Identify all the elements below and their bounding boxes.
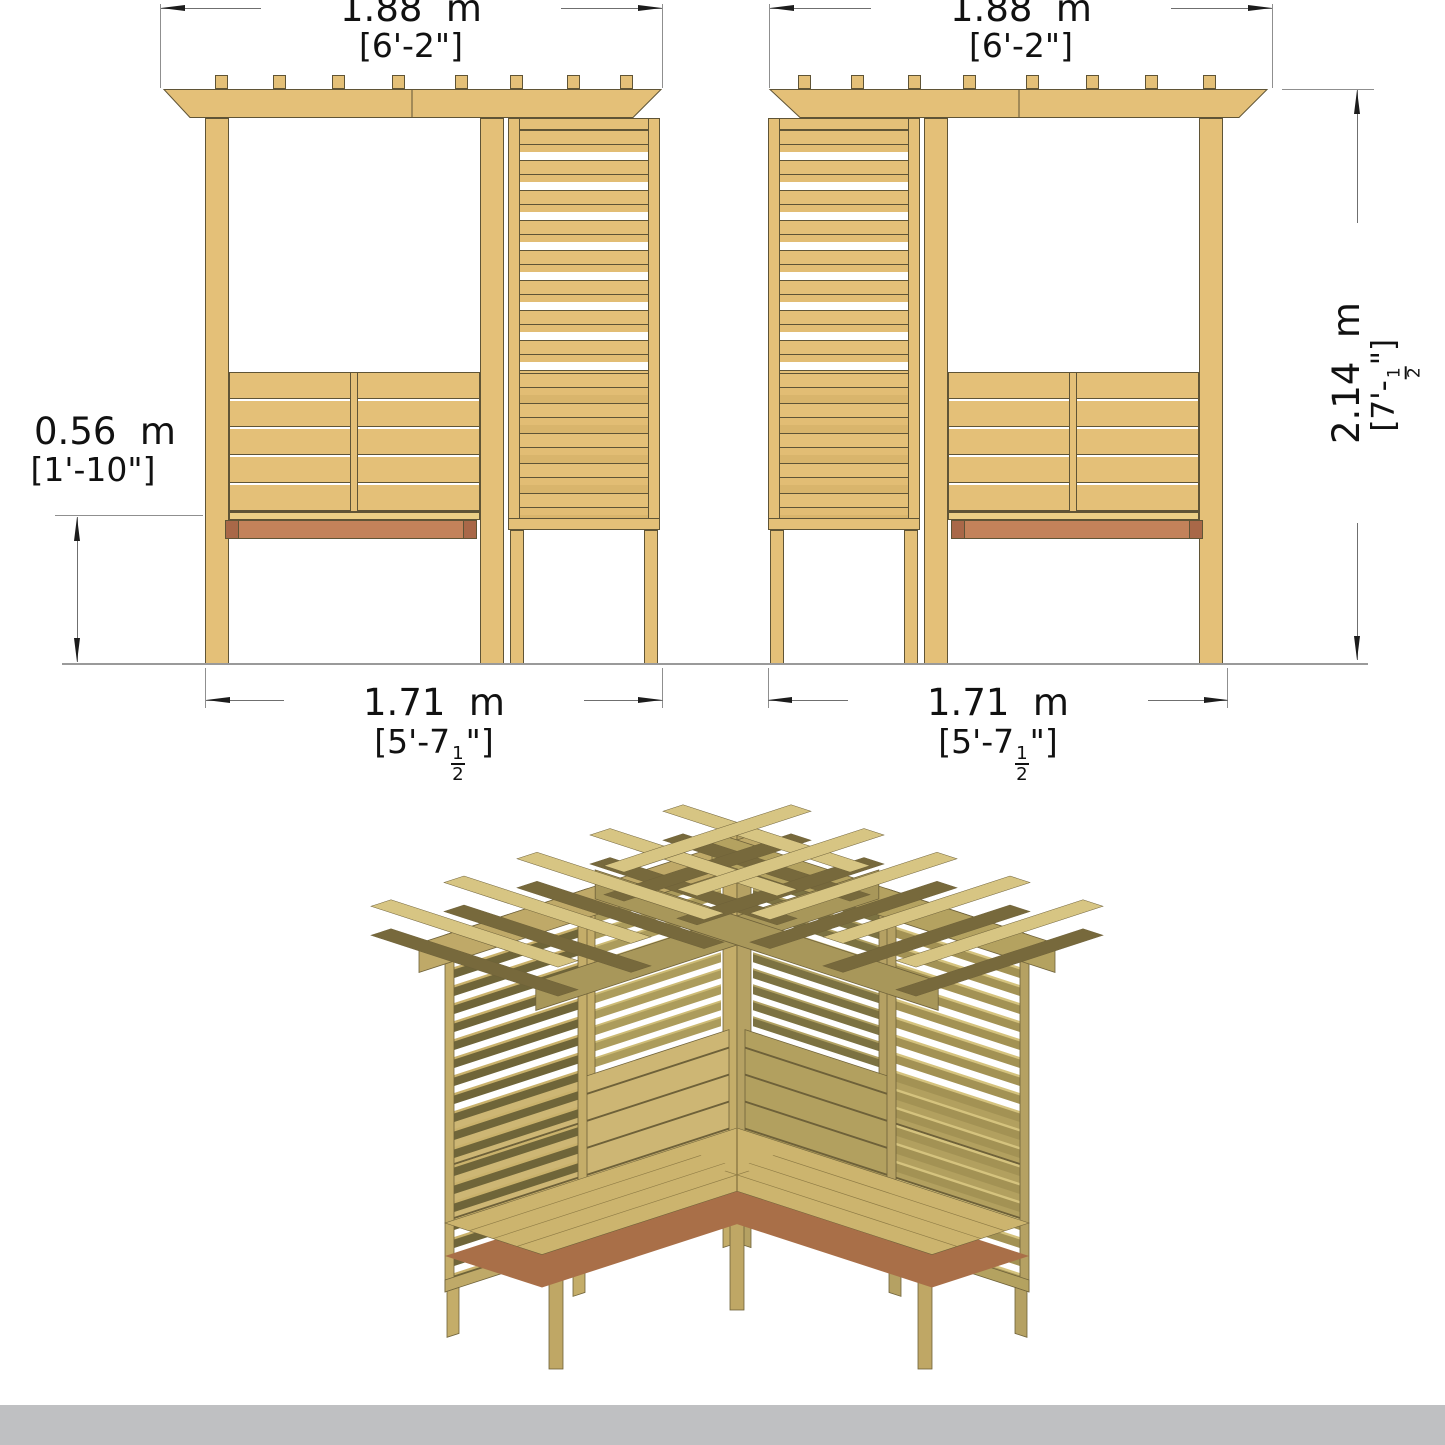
trellis-slats-lower [780,373,908,518]
trellis-bottom-rail [508,518,660,530]
arrowhead [1354,90,1360,114]
bench-apron [951,520,1203,539]
fraction: 12 [451,744,465,784]
fraction-denominator: 2 [1015,763,1029,784]
extension-line [662,668,663,708]
extension-line [160,4,161,88]
trellis-slats [520,130,648,373]
arrowhead [638,697,662,703]
extension-line [662,4,663,88]
trellis-bottom-rail [768,518,920,530]
fraction-denominator: 2 [451,763,465,784]
backrest-divider [350,372,358,512]
rafter-tab [1086,75,1099,89]
post [480,118,504,665]
arrowhead [161,5,185,11]
trellis-stile [908,118,920,530]
dim-bottom-left-imperial: [5'-712"] [284,722,584,784]
rafter-tab [798,75,811,89]
imperial-prefix: [5'-7 [938,722,1014,761]
imperial-prefix: [5'-7 [374,722,450,761]
rafter-tab [908,75,921,89]
arrowhead [74,638,80,662]
bench-apron [225,520,477,539]
rafter-tab [1203,75,1216,89]
arrowhead [1354,636,1360,660]
elevation-view-right [768,70,1273,670]
rafter-tab [273,75,286,89]
rafter-tab [1145,75,1158,89]
dim-bottom-right-metric: 1.71 m [848,681,1148,724]
fraction-numerator: 1 [452,744,464,763]
rafter-tab [1026,75,1039,89]
fraction-denominator: 2 [1404,366,1424,379]
ground-line [62,663,1368,665]
dim-width-right-imperial: [6'-2"] [871,26,1171,65]
dim-height-imperial: [7'-12"] [1366,235,1425,535]
trellis-top-rail [768,118,920,130]
post [1199,118,1223,665]
isometric-view [330,748,1090,1408]
pergola-beam [768,88,1273,119]
technical-drawing-page: 1.88 m [6'-2"] 1.88 m [6'-2"] 2.14 m [7'… [0,0,1445,1445]
imperial-prefix: [7'- [1366,380,1402,432]
dim-seat-imperial: [1'-10"] [8,450,178,489]
dim-seat-metric: 0.56 m [25,410,185,453]
footer-bar [0,1405,1445,1445]
arrowhead [74,517,80,541]
rafter-tab [567,75,580,89]
fraction: 12 [1387,366,1425,379]
apron-cap [952,521,965,538]
extension-line [1272,4,1273,88]
arrowhead [770,5,794,11]
rafter-tab [455,75,468,89]
dim-width-left-imperial: [6'-2"] [261,26,561,65]
fraction: 12 [1015,744,1029,784]
rafter-tab [510,75,523,89]
arrowhead [768,697,792,703]
pergola-beam [160,88,665,119]
elevation-view-left [160,70,665,670]
rafter-tab [851,75,864,89]
arrowhead [1248,5,1272,11]
trellis-stile [648,118,660,530]
bench-seat-edge [229,512,480,520]
trellis-slats [780,130,908,373]
apron-cap [1189,521,1202,538]
dim-bottom-right-imperial: [5'-712"] [848,722,1148,784]
arrowhead [1204,697,1228,703]
rafter-tab [392,75,405,89]
trellis-leg [644,530,658,665]
backrest-divider [1069,372,1077,512]
fraction-numerator: 1 [1016,744,1028,763]
trellis-leg [510,530,524,665]
apron-cap [226,521,239,538]
extension-line [1282,89,1374,90]
extension-line [55,515,203,516]
rafter-tab [215,75,228,89]
fraction-numerator: 1 [1387,367,1405,378]
rafter-tab [620,75,633,89]
trellis-slats-lower [520,373,648,518]
trellis-leg [770,530,784,665]
imperial-suffix: "] [1366,339,1402,365]
post [924,118,948,665]
bench-seat-edge [948,512,1199,520]
extension-line [769,4,770,88]
trellis-stile [768,118,780,530]
dim-height-metric: 2.14 m [1325,223,1367,523]
rafter-tab [963,75,976,89]
trellis-leg [904,530,918,665]
trellis-top-rail [508,118,660,130]
apron-cap [463,521,476,538]
dim-bottom-left-metric: 1.71 m [284,681,584,724]
rafter-tab [332,75,345,89]
trellis-stile [508,118,520,530]
arrowhead [638,5,662,11]
arrowhead [206,697,230,703]
imperial-suffix: "] [466,722,494,761]
imperial-suffix: "] [1030,722,1058,761]
post [205,118,229,665]
